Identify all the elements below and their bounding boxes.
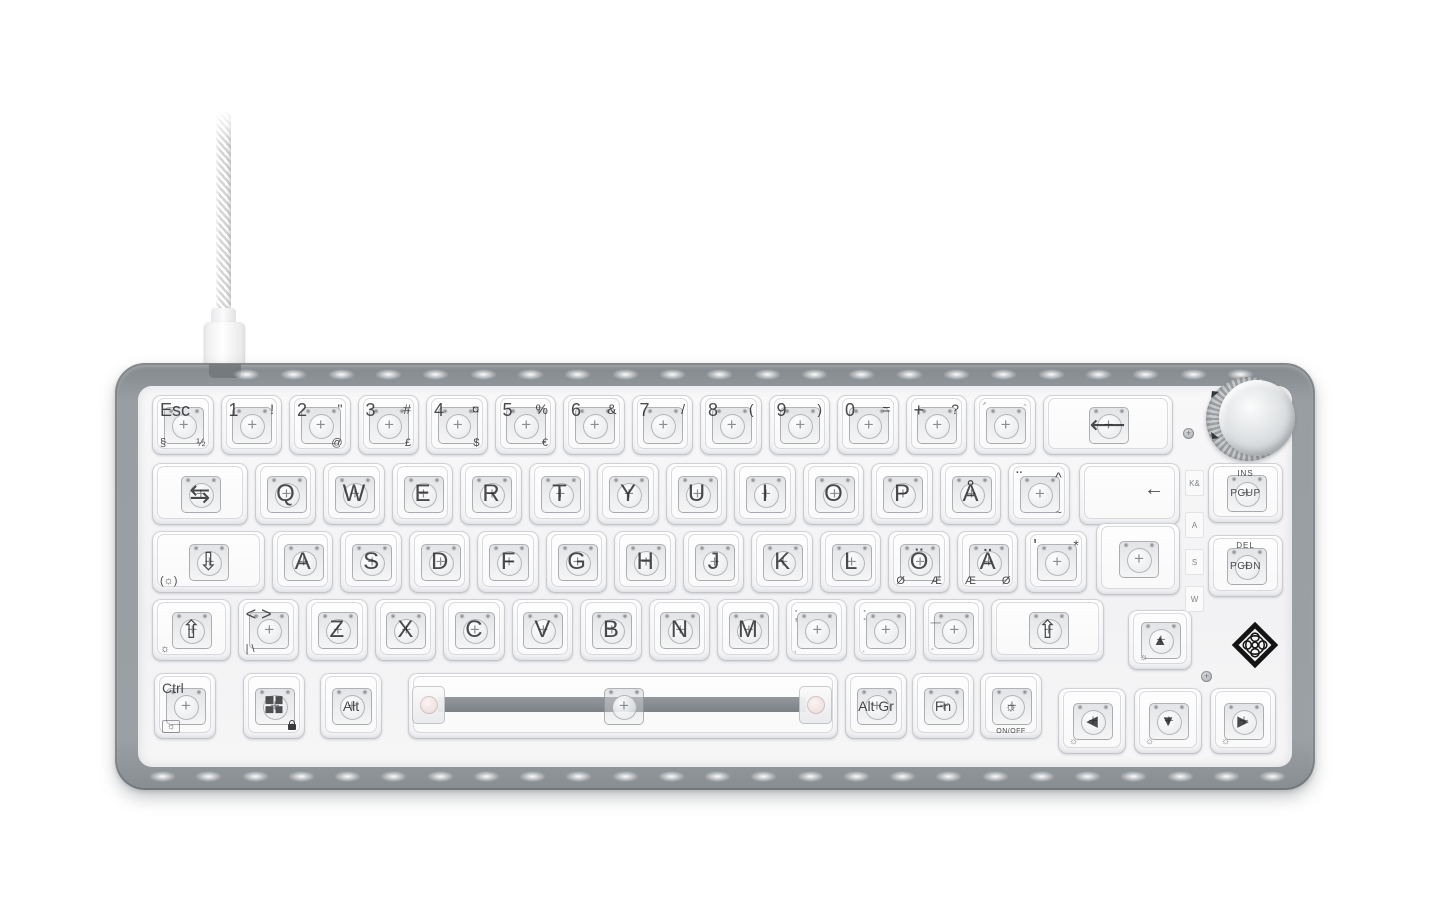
key-j: J: [683, 531, 745, 593]
key-legend: J: [683, 531, 745, 593]
key-legend: ): [817, 402, 822, 416]
screw-icon: [1201, 671, 1212, 682]
key-z: Z: [306, 599, 368, 661]
key-legend: K: [751, 531, 813, 593]
key-s: S: [340, 531, 402, 593]
key-3: 3#£: [358, 395, 420, 455]
key-legend: M: [717, 599, 779, 661]
key-legend: £: [405, 438, 411, 449]
key-legend: !: [270, 402, 274, 416]
led-dot: [1180, 369, 1207, 380]
key-legend: 5: [503, 401, 513, 419]
switch-icon: [1119, 541, 1159, 578]
key-arrow-down: ▼☼: [1134, 688, 1202, 754]
key-legend: B: [580, 599, 642, 661]
key-legend: =: [882, 402, 890, 416]
key-legend: 2: [297, 401, 307, 419]
key-legend: ☼: [162, 720, 180, 733]
key-r: R: [460, 463, 522, 525]
key-legend: §: [160, 438, 166, 449]
switch-icon: [1037, 544, 1077, 581]
key-legend: I: [734, 463, 796, 525]
key-legend: S: [340, 531, 402, 593]
side-label: S: [1185, 549, 1204, 575]
key-legend: ⟵: [1043, 395, 1173, 455]
switch-icon: [986, 407, 1026, 444]
led-dot: [658, 771, 685, 782]
key-legend: Ö: [888, 531, 950, 593]
key-legend: ☼: [1139, 653, 1148, 663]
key-adiaeresis: ÆØÄ: [957, 531, 1019, 593]
switch-icon: [1020, 476, 1060, 513]
key-legend: ^: [1055, 470, 1062, 484]
key-legend: H: [614, 531, 676, 593]
led-dot: [1213, 771, 1240, 782]
key-diaeresis: ¨^~: [1008, 463, 1070, 525]
key-legend: +: [914, 401, 925, 419]
key-legend: 0: [845, 401, 855, 419]
key-x: X: [375, 599, 437, 661]
key-altgr: Alt Gr: [845, 673, 907, 739]
switch-icon: [604, 688, 644, 725]
led-dot: [843, 771, 870, 782]
key-lshift: ☼⇧: [152, 599, 231, 661]
key-4: 4¤$: [426, 395, 488, 455]
key-legend: O: [803, 463, 865, 525]
led-dot: [473, 771, 500, 782]
key-legend: :: [862, 605, 867, 623]
key-legend: ▲: [1128, 610, 1192, 670]
side-label: W: [1185, 586, 1204, 612]
key-legend: *: [1073, 538, 1078, 552]
led-dot: [612, 369, 639, 380]
key-q: Q: [255, 463, 317, 525]
key-legend: ⇩: [152, 531, 265, 593]
key-legend: P: [871, 463, 933, 525]
stabilizer-housing: [799, 686, 832, 724]
key-legend: 1: [229, 401, 239, 419]
key-ins-pgup: INSPGUP: [1208, 463, 1283, 523]
key-a: A: [272, 531, 334, 593]
key-legend: ": [338, 402, 343, 416]
key-b: B: [580, 599, 642, 661]
key-esc: Esc§½: [152, 395, 214, 455]
key-acute: ´`: [974, 395, 1036, 455]
key-plus: +?: [906, 395, 968, 455]
key-apostrophe: '*: [1025, 531, 1087, 593]
side-label: A: [1185, 512, 1204, 538]
key-space: [408, 673, 838, 739]
led-dot: [943, 369, 970, 380]
windows-logo-icon: [266, 696, 283, 713]
key-m: M: [717, 599, 779, 661]
key-legend: PGDN: [1208, 562, 1283, 572]
key-legend: DEL: [1208, 542, 1283, 550]
key-legend: D: [409, 531, 471, 593]
led-dot: [889, 771, 916, 782]
key-rshift: ⇧: [991, 599, 1104, 661]
key-2: 2"@: [289, 395, 351, 455]
led-dot: [801, 369, 828, 380]
key-legend: ½: [196, 438, 205, 449]
enter-arrow-icon: ←: [1144, 479, 1164, 499]
key-legend: (: [749, 402, 754, 416]
stabilizer-housing: [412, 686, 445, 724]
led-dot: [334, 771, 361, 782]
key-legend: Alt Gr: [845, 673, 907, 739]
led-dot: [328, 369, 355, 380]
key-legend: ´: [982, 401, 988, 419]
key-legend: -: [931, 644, 935, 655]
key-t: T: [529, 463, 591, 525]
key-legend: Z: [306, 599, 368, 661]
key-legend: INS: [1208, 470, 1283, 478]
key-o: O: [803, 463, 865, 525]
usb-cable: [216, 110, 231, 316]
key-legend: C: [443, 599, 505, 661]
key-light: ☼ON/OFF: [980, 673, 1042, 739]
key-legend: A: [272, 531, 334, 593]
key-legend: Ä: [957, 531, 1019, 593]
lock-icon: [288, 724, 296, 730]
key-win: [243, 673, 305, 739]
key-legend: ~: [1055, 508, 1061, 519]
key-legend: ': [1033, 537, 1036, 555]
led-dot: [1167, 771, 1194, 782]
key-legend: `: [1023, 402, 1028, 416]
led-dot: [233, 369, 260, 380]
led-dot: [1038, 369, 1065, 380]
key-enter: ←: [1079, 463, 1180, 525]
key-comma: ;,: [786, 599, 848, 661]
key-legend: &: [607, 402, 616, 416]
key-legend: 8: [708, 401, 718, 419]
led-dot: [519, 771, 546, 782]
led-dot: [896, 369, 923, 380]
led-dot: [470, 369, 497, 380]
key-fn: Fn: [912, 673, 974, 739]
led-dot: [659, 369, 686, 380]
key-legend: 3: [366, 401, 376, 419]
key-legend: /: [681, 402, 685, 416]
key-legend: ¨: [1016, 469, 1022, 487]
key-legend: N: [649, 599, 711, 661]
key-legend: PGUP: [1208, 489, 1283, 499]
key-dash: _-: [923, 599, 985, 661]
key-f: F: [477, 531, 539, 593]
key-legend: G: [546, 531, 608, 593]
key-arrow-up: ▲☼: [1128, 610, 1192, 670]
key-legend: Ctrl: [162, 681, 184, 695]
led-dot: [288, 771, 315, 782]
key-legend: 9: [777, 401, 787, 419]
key-legend: #: [403, 402, 411, 416]
key-i: I: [734, 463, 796, 525]
product-photo: Esc§½1!2"@3#£4¤$5%€6&7/8(9)0=+?´`⟵⇆QWERT…: [0, 0, 1430, 900]
key-l: L: [820, 531, 882, 593]
key-7: 7/: [632, 395, 694, 455]
key-legend: Esc: [160, 401, 190, 419]
key-h: H: [614, 531, 676, 593]
led-dot: [982, 771, 1009, 782]
key-odiaeresis: ØÆÖ: [888, 531, 950, 593]
key-e: E: [392, 463, 454, 525]
led-dot: [1028, 771, 1055, 782]
key-legend: Q: [255, 463, 317, 525]
key-legend: €: [542, 438, 548, 449]
key-u: U: [666, 463, 728, 525]
key-arrow-left: ◀☼: [1058, 688, 1126, 754]
switch-icon: [866, 612, 906, 649]
key-y: Y: [597, 463, 659, 525]
key-8: 8(: [700, 395, 762, 455]
key-arrow-right: ▶☼: [1210, 688, 1276, 754]
key-legend: | \: [246, 644, 255, 655]
led-dot: [1259, 771, 1286, 782]
key-backspace: ⟵: [1043, 395, 1173, 455]
key-legend: 4: [434, 401, 444, 419]
key-legend: R: [460, 463, 522, 525]
led-dot: [375, 369, 402, 380]
side-label: K&: [1185, 470, 1204, 496]
key-legend: F: [477, 531, 539, 593]
key-caps: (☼)⇩: [152, 531, 265, 593]
key-n: N: [649, 599, 711, 661]
key-6: 6&: [563, 395, 625, 455]
key-del-pgdn: DELPGDN: [1208, 535, 1283, 597]
key-legend: ☼: [1069, 737, 1078, 747]
key-ctrl: Ctrl☼: [154, 673, 216, 739]
key-legend: %: [536, 402, 548, 416]
key-legend: ,: [794, 644, 797, 655]
key-legend: ?: [951, 402, 959, 416]
key-d: D: [409, 531, 471, 593]
key-w: W: [323, 463, 385, 525]
led-dot: [427, 771, 454, 782]
key-legend: ☼: [1221, 737, 1230, 747]
screw-icon: [1183, 428, 1194, 439]
key-legend: Y: [597, 463, 659, 525]
key-legend: 6: [571, 401, 581, 419]
key-legend: E: [392, 463, 454, 525]
key-legend: _: [931, 605, 941, 623]
key-period: :.: [854, 599, 916, 661]
key-legend: ;: [794, 605, 799, 623]
led-dot: [612, 771, 639, 782]
key-legend: .: [862, 644, 865, 655]
key-aring: Å: [940, 463, 1002, 525]
key-legend: Fn: [912, 673, 974, 739]
key-legend: W: [323, 463, 385, 525]
key-5: 5%€: [495, 395, 557, 455]
key-legend: T: [529, 463, 591, 525]
key-legend: Å: [940, 463, 1002, 525]
led-dot: [517, 369, 544, 380]
key-g: G: [546, 531, 608, 593]
led-dot: [242, 771, 269, 782]
key-v: V: [512, 599, 574, 661]
key-c: C: [443, 599, 505, 661]
key-legend: ⇧: [152, 599, 231, 661]
led-dot: [797, 771, 824, 782]
key-legend: < >: [246, 605, 272, 623]
led-dot: [754, 369, 781, 380]
key-p: P: [871, 463, 933, 525]
key-legend: $: [473, 438, 479, 449]
key-legend: X: [375, 599, 437, 661]
key-legend: ⇆: [152, 463, 248, 525]
key-k: K: [751, 531, 813, 593]
key-legend: Alt: [320, 673, 382, 739]
key-9: 9): [769, 395, 831, 455]
key-legend: ⇧: [991, 599, 1104, 661]
led-dot: [149, 771, 176, 782]
key-legend: V: [512, 599, 574, 661]
key-legend: ON/OFF: [980, 728, 1042, 735]
key-legend: L: [820, 531, 882, 593]
key-legend: U: [666, 463, 728, 525]
key-legend: ▶: [1210, 688, 1276, 754]
key-legend: ¤: [472, 402, 480, 416]
led-dot: [704, 771, 731, 782]
volume-knob: [1219, 380, 1295, 456]
key-legend: 7: [640, 401, 650, 419]
key-tab: ⇆: [152, 463, 248, 525]
key-less-greater: < >| \: [238, 599, 300, 661]
key-0: 0=: [837, 395, 899, 455]
key-legend: ☼: [1145, 737, 1154, 747]
key-legend: @: [331, 438, 342, 449]
key-enter-lower: [1096, 523, 1180, 595]
key-1: 1!: [221, 395, 283, 455]
key-alt: Alt: [320, 673, 382, 739]
led-dot: [1074, 771, 1101, 782]
led-dot: [1085, 369, 1112, 380]
switch-icon: [797, 612, 837, 649]
deltaco-gaming-logo-icon: [1226, 616, 1284, 674]
